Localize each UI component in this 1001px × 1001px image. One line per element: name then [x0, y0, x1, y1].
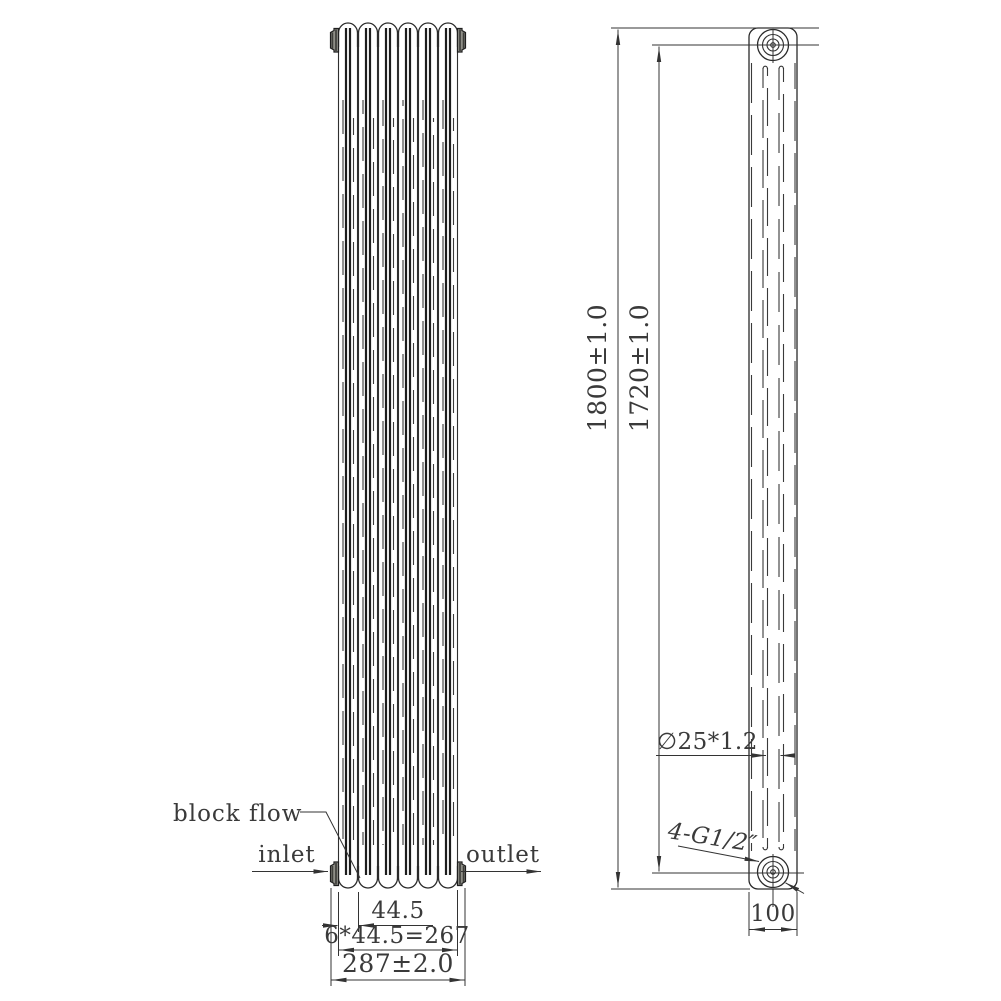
- dim-overall-width-text: 287±2.0: [342, 949, 454, 978]
- dim-section-pitch-text: 44.5: [371, 898, 424, 924]
- radiator-technical-drawing: block flow inlet outlet 44.5 6*44: [0, 0, 1001, 1001]
- dim-depth: 100: [749, 889, 797, 936]
- outlet-label: outlet: [466, 842, 540, 868]
- drawing-svg: block flow inlet outlet 44.5 6*44: [0, 0, 1001, 1001]
- dim-overall-width: 287±2.0: [331, 949, 465, 980]
- dome: [359, 23, 378, 47]
- side-top-port: [758, 29, 789, 63]
- side-bottom-port: [758, 854, 789, 888]
- front-section-edges: [339, 47, 458, 866]
- plug-bottom-right: [458, 862, 466, 886]
- side-extension-lines: [611, 28, 819, 889]
- scallop: [359, 866, 378, 888]
- dim-depth-text: 100: [750, 901, 795, 927]
- dim-overall-height: 1800±1.0: [583, 30, 618, 888]
- dome: [339, 23, 358, 47]
- dim-port-distance: 1720±1.0: [625, 47, 659, 872]
- dome: [399, 23, 418, 47]
- plug-bottom-left: [331, 862, 339, 886]
- dim-tube-spec-text: ∅25*1.2: [657, 729, 758, 755]
- plug-top-left: [331, 29, 339, 53]
- dome: [439, 23, 458, 47]
- scallop: [439, 866, 458, 888]
- front-bottom-scallops: [339, 866, 458, 888]
- dim-tube-spec: ∅25*1.2: [656, 729, 793, 756]
- side-view: [749, 28, 797, 889]
- front-top-domes: [339, 23, 458, 47]
- dim-port-distance-text: 1720±1.0: [625, 304, 654, 432]
- dim-sections-total-text: 6*44.5=267: [324, 923, 470, 949]
- plug-top-right: [458, 29, 466, 53]
- scallop: [339, 866, 358, 888]
- scallop: [379, 866, 398, 888]
- front-view: [331, 23, 466, 888]
- dim-overall-height-text: 1800±1.0: [583, 304, 612, 432]
- side-tube-lines: [752, 63, 796, 851]
- block-flow-label: block flow: [173, 801, 302, 827]
- dome: [379, 23, 398, 47]
- scallop: [419, 866, 438, 888]
- inlet-label: inlet: [258, 842, 315, 868]
- side-body-outline: [749, 28, 797, 889]
- dome: [419, 23, 438, 47]
- scallop: [399, 866, 418, 888]
- dim-sections-total: 6*44.5=267: [324, 923, 470, 950]
